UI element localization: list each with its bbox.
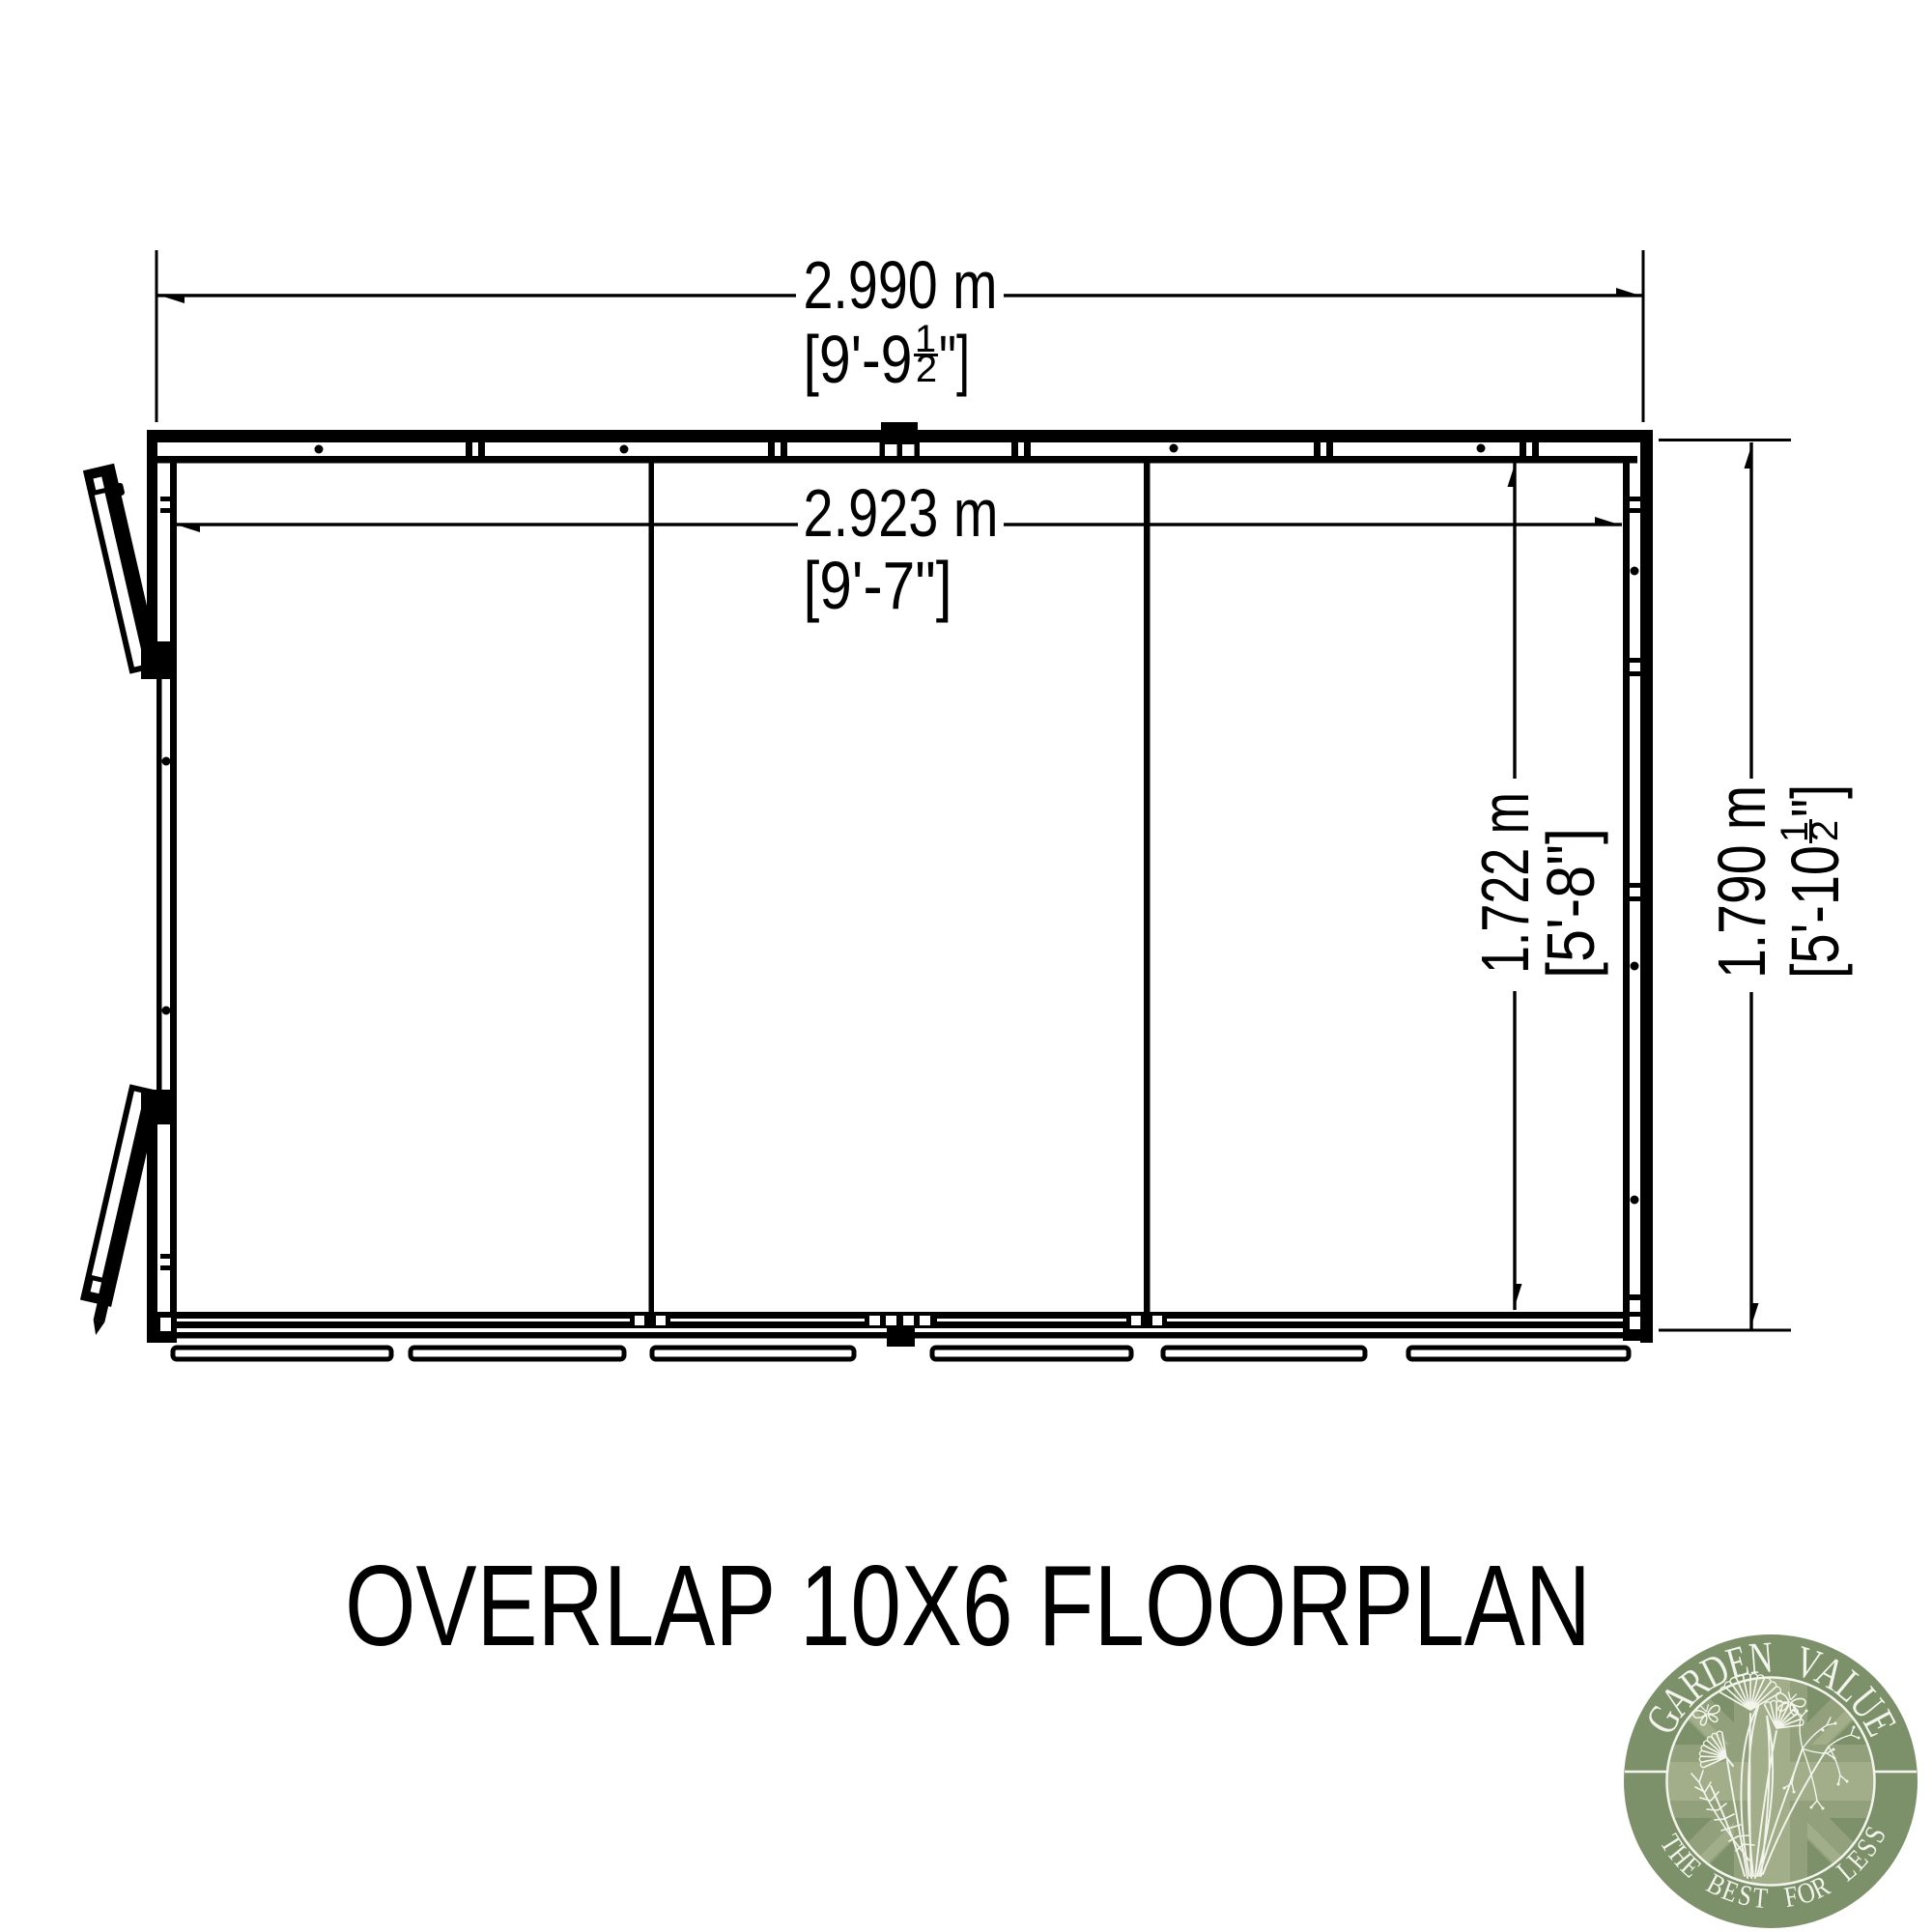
svg-text:T: T: [1751, 1882, 1769, 1915]
svg-text:[5'-10: [5'-10: [1777, 845, 1853, 979]
svg-text:[9'-7"]: [9'-7"]: [804, 548, 952, 623]
svg-text:2.923 m: 2.923 m: [804, 475, 999, 551]
svg-text:"]: "]: [1777, 784, 1853, 817]
svg-text:2: 2: [1804, 820, 1846, 841]
svg-text:1.722 m: 1.722 m: [1467, 792, 1543, 974]
svg-text:1.790 m: 1.790 m: [1704, 785, 1779, 979]
svg-text:"]: "]: [939, 322, 970, 397]
svg-text:N: N: [1747, 1633, 1776, 1684]
svg-text:[9'-9: [9'-9: [804, 322, 913, 397]
svg-text:2: 2: [916, 348, 937, 390]
svg-text:[5'-8"]: [5'-8"]: [1533, 828, 1608, 979]
svg-text:OVERLAP 10X6 FLOORPLAN: OVERLAP 10X6 FLOORPLAN: [345, 1542, 1591, 1670]
svg-text:2.990 m: 2.990 m: [804, 247, 998, 323]
